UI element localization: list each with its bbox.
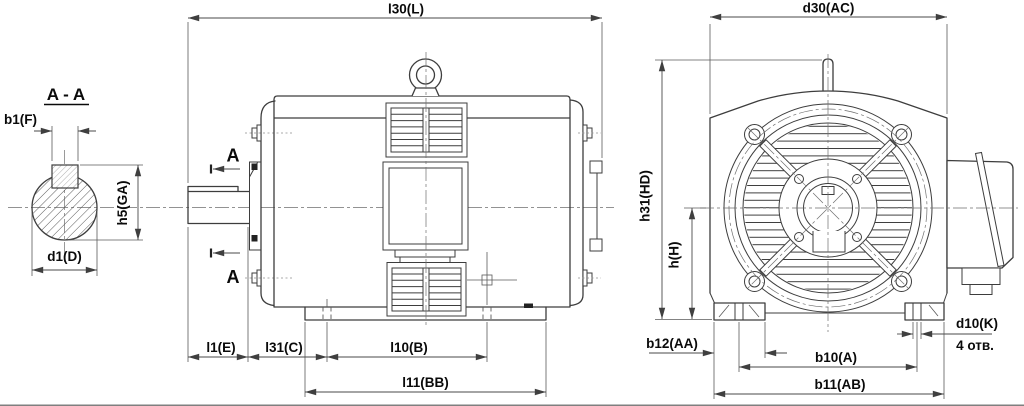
end-shield-bolts-rear (578, 125, 601, 286)
key-cross-section (52, 165, 78, 188)
dimension-b12: b12(AA) (646, 322, 787, 358)
front-view: d30(AC) h31(HD) h(H) b12(AA) b10(A) (638, 1, 1019, 400)
terminal-box-front (947, 153, 1013, 295)
terminal-box-side (383, 162, 468, 263)
dim-label-d1: d1(D) (47, 249, 82, 264)
mounting-foot-left (714, 303, 765, 320)
section-cut-mark-bottom (252, 235, 258, 242)
dim-label-l10: l10(B) (390, 340, 428, 355)
dim-label-d30: d30(AC) (803, 1, 855, 16)
dimension-bottom-row: l1(E) l31(C) l10(B) l11(BB) (188, 227, 546, 397)
dim-label-h5: h5(GA) (115, 181, 130, 226)
mounting-foot-right (905, 303, 944, 320)
top-cooling-fins (386, 103, 467, 157)
section-letter-bottom: A (227, 267, 240, 287)
dim-label-b12: b12(AA) (646, 336, 698, 351)
dim-label-l30: l30(L) (388, 2, 424, 17)
holes-count-note: 4 отв. (956, 338, 994, 353)
dimension-d10: d10(K) 4 отв. (897, 316, 998, 353)
rear-end-shield (570, 100, 583, 306)
dimension-b10: b10(A) (739, 322, 917, 372)
lifting-eye (410, 59, 442, 96)
dim-label-l1: l1(E) (206, 340, 235, 355)
dimension-b1: b1(F) (4, 112, 96, 161)
earth-terminal (467, 252, 517, 305)
bottom-cooling-fins (387, 263, 466, 317)
section-plane-marks: A A (211, 146, 240, 288)
section-letter-top: A (227, 146, 240, 166)
dim-label-h31: h31(HD) (638, 170, 653, 222)
dim-label-d10: d10(K) (956, 316, 998, 331)
base-mark (524, 304, 533, 309)
dimension-h: h(H) (667, 208, 707, 319)
dim-label-b10: b10(A) (815, 350, 857, 365)
rear-cover (590, 161, 602, 251)
dim-label-h: h(H) (667, 242, 682, 269)
section-cut-mark-top (252, 164, 258, 171)
front-end-shield (261, 101, 275, 306)
section-title: A - A (47, 85, 85, 104)
dim-label-b1: b1(F) (4, 112, 37, 127)
technical-drawing: A - A b1(F) h5(GA) d1(D) (0, 0, 1024, 406)
motor-dimension-drawing: A - A b1(F) h5(GA) d1(D) (0, 0, 1024, 406)
cross-section-view: A - A b1(F) h5(GA) d1(D) (4, 85, 143, 276)
dim-label-l31: l31(C) (265, 340, 303, 355)
side-view: A A l30(L) l1(E) l31(C) l10(B) (188, 2, 602, 398)
dim-label-b11: b11(AB) (814, 377, 865, 392)
dim-label-l11: l11(BB) (402, 375, 449, 390)
shaft (188, 187, 250, 224)
